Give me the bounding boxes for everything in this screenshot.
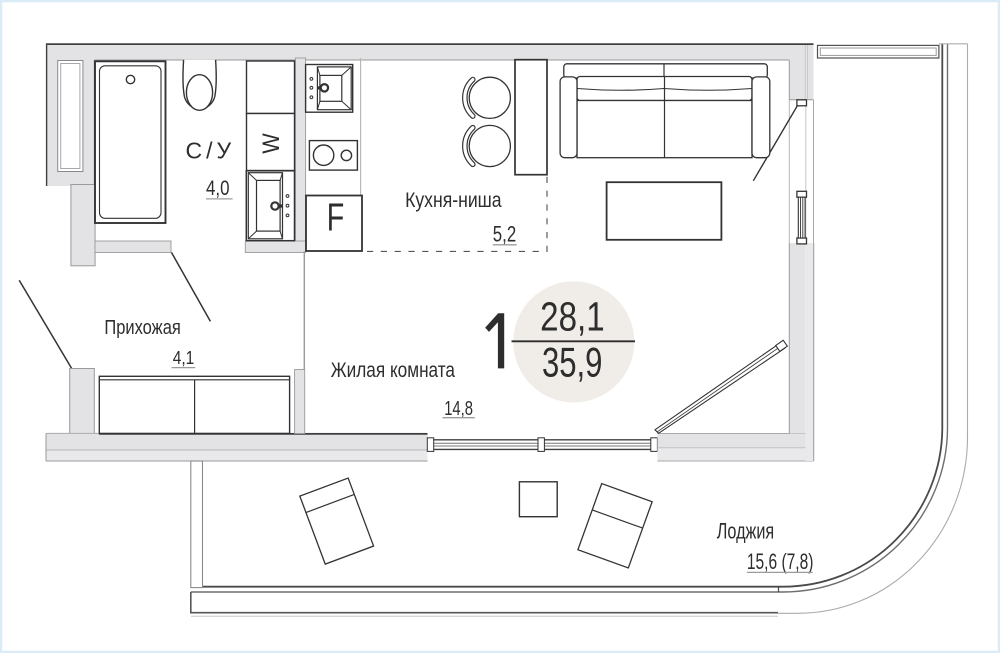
svg-text:Прихожая: Прихожая [104,316,180,339]
svg-text:С/У: С/У [186,138,236,164]
svg-text:14,8: 14,8 [444,398,473,420]
svg-text:15,6 (7,8): 15,6 (7,8) [747,549,814,574]
svg-text:28,1: 28,1 [540,294,605,340]
svg-text:5,2: 5,2 [493,222,516,247]
svg-text:W: W [258,132,285,153]
svg-text:F: F [327,197,345,240]
svg-text:Жилая комната: Жилая комната [331,359,456,382]
svg-text:Лоджия: Лоджия [717,519,774,544]
svg-text:4,0: 4,0 [206,177,230,200]
svg-text:35,9: 35,9 [542,339,603,386]
svg-text:4,1: 4,1 [173,347,195,368]
svg-text:Кухня-ниша: Кухня-ниша [405,189,502,212]
